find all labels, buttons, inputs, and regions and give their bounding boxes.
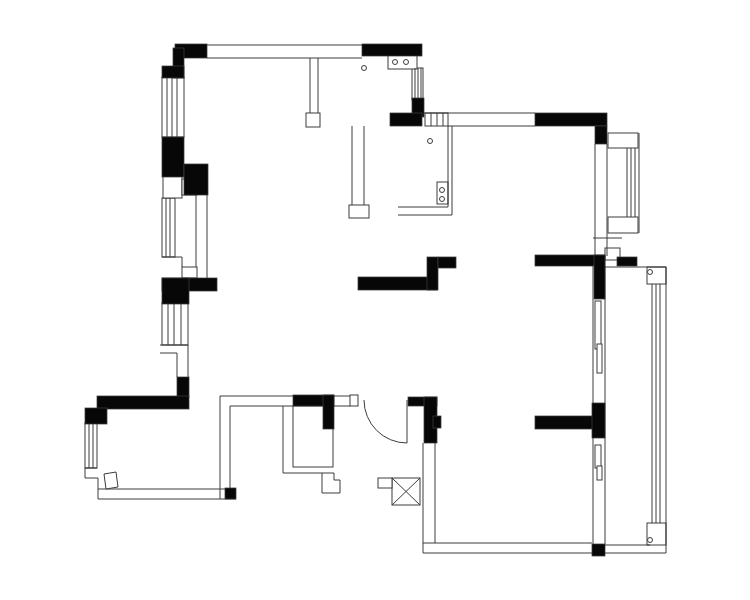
frame-rect [597, 466, 602, 480]
frame-rect [162, 77, 184, 137]
frame-rect [349, 205, 369, 218]
wall-segment [184, 164, 208, 195]
wall-segment [592, 544, 605, 556]
wall-segment [535, 113, 607, 126]
wall-segment [358, 277, 437, 290]
symbol-circle [393, 60, 398, 65]
frame-rect [597, 344, 602, 373]
symbol-circle [428, 139, 433, 144]
symbol-circle [440, 197, 445, 202]
symbol-circle [648, 270, 653, 275]
wall-segment [323, 395, 334, 429]
floor-plan-canvas [0, 0, 750, 600]
frame-rect [85, 423, 97, 468]
entry-door-leaf [104, 472, 118, 489]
wall-segment [594, 255, 605, 299]
wall-segment [162, 137, 184, 177]
drain-and-knob-circles-group [362, 60, 653, 543]
wall-segment [362, 44, 422, 56]
wall-segment [225, 488, 236, 499]
door-swing-arc [364, 400, 407, 443]
wall-segment [162, 278, 189, 304]
wall-segment [438, 257, 456, 268]
wall-segment [390, 113, 422, 126]
floor-plan-page [0, 0, 750, 600]
frame-rect [162, 303, 188, 345]
wall-segment [85, 408, 107, 424]
frame-rect [608, 133, 638, 148]
frame-rect [350, 395, 358, 406]
wall-segment [592, 403, 605, 438]
symbol-circle [404, 60, 409, 65]
symbol-circle [440, 188, 445, 193]
symbol-circle [362, 66, 367, 71]
frame-rect [378, 478, 392, 488]
wall-segment [595, 126, 607, 144]
frame-rect [595, 301, 601, 349]
wall-segment [177, 377, 189, 397]
wall-segment [617, 257, 637, 266]
frame-rect [162, 198, 175, 257]
frame-rect [595, 445, 601, 468]
wall-segment [162, 66, 184, 78]
frame-rect [182, 267, 197, 278]
frame-rect [608, 217, 638, 233]
symbol-circle [648, 538, 653, 543]
wall-segment [427, 257, 438, 290]
wall-segment [433, 416, 441, 428]
wall-segment [97, 396, 189, 409]
shower-step-outline [322, 473, 340, 493]
wall-segment [535, 416, 597, 429]
frame-rect [163, 176, 182, 198]
frame-rect [306, 113, 320, 127]
